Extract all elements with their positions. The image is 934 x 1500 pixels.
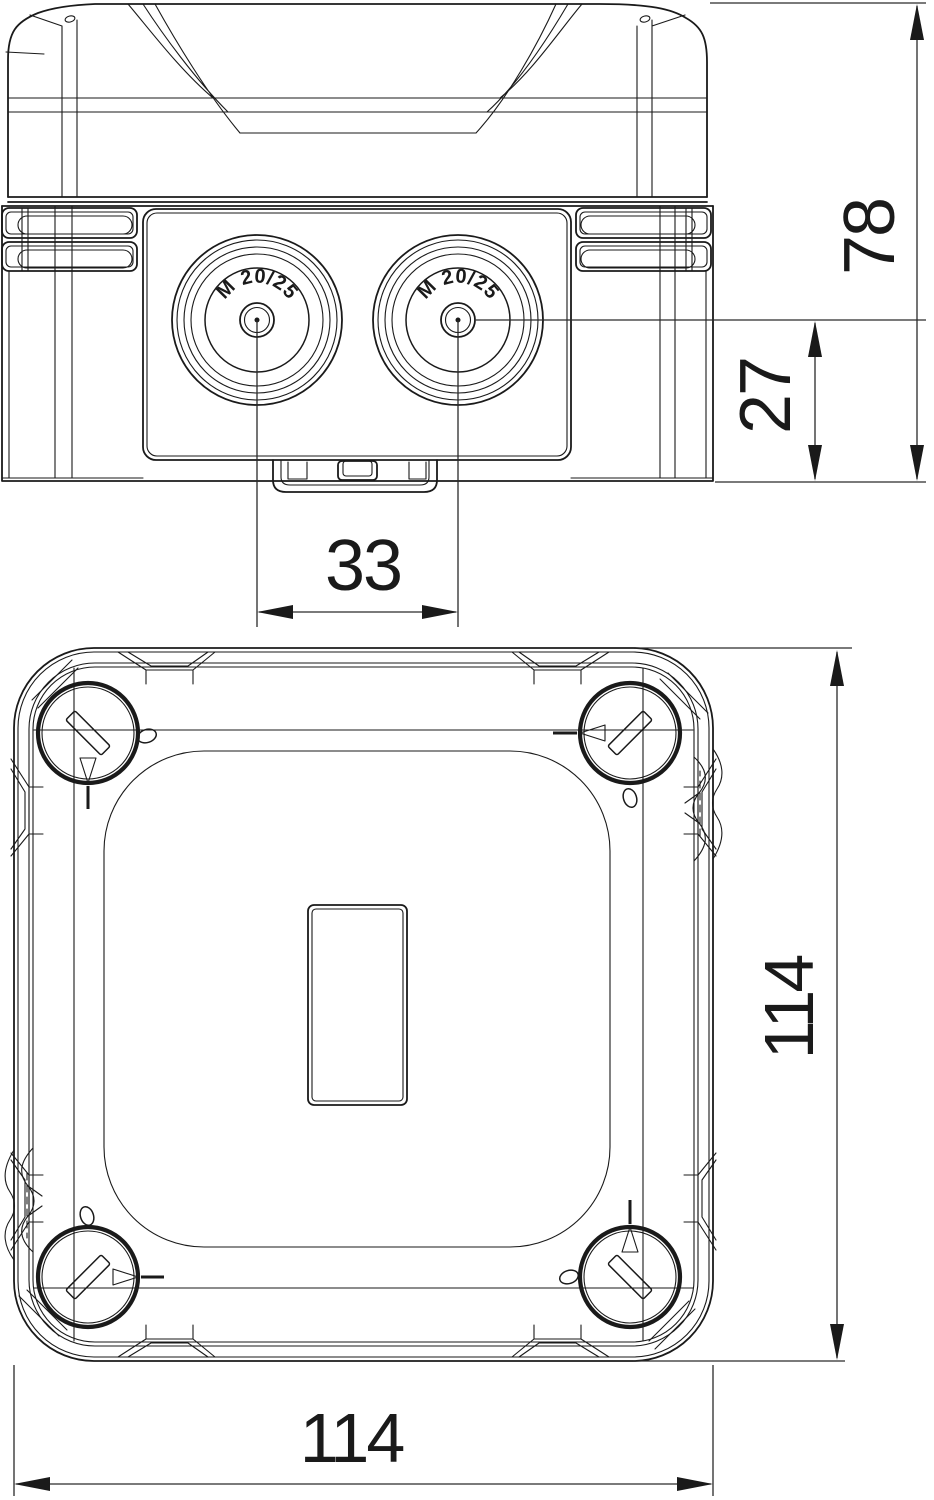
- entry-size-label-right: M 20/25: [413, 265, 503, 303]
- mounting-foot: [273, 460, 437, 492]
- dimension-27: 27: [476, 320, 926, 481]
- plan-side-latch: [5, 1148, 42, 1260]
- lid-recess: [128, 4, 582, 133]
- dim-114h-label: 114: [300, 1399, 404, 1477]
- dimension-33: 33: [257, 526, 458, 619]
- body-inner-walls: [2, 271, 713, 478]
- plan-inner-panel: [104, 751, 610, 1247]
- entry-size-label-left: M 20/25: [212, 265, 302, 303]
- lid-outline: [8, 4, 707, 197]
- dim-78-label: 78: [830, 199, 910, 275]
- dimension-114-vertical: 114: [633, 648, 852, 1361]
- dim-27-label: 27: [726, 358, 806, 434]
- dimension-114-horizontal: 114: [14, 1365, 713, 1496]
- corner-decor: [32, 652, 609, 708]
- drawing-canvas: M 20/25 M 20/25 78 27: [0, 0, 934, 1500]
- lid-seam-lines: [6, 52, 707, 133]
- plan-outer-edge: [14, 648, 713, 1361]
- dim-33-label: 33: [325, 526, 401, 606]
- screw-top-right: [553, 683, 680, 809]
- plan-edge-2: [18, 652, 709, 1357]
- body-outline: [2, 206, 713, 481]
- screw-bottom-right: [558, 1200, 680, 1327]
- technical-drawing-junction-box: M 20/25 M 20/25 78 27: [0, 0, 934, 1500]
- plan-view: [5, 648, 722, 1361]
- lid-corner-seams: [30, 15, 685, 197]
- label-field: [308, 905, 407, 1105]
- screw-bottom-left: [38, 1205, 164, 1327]
- parting-line: [2, 197, 713, 206]
- latch-left: [2, 208, 137, 271]
- screw-top-left: [38, 683, 158, 809]
- label-field-inner: [312, 909, 403, 1101]
- dim-114v-label: 114: [750, 956, 828, 1060]
- latch-right: [576, 208, 711, 271]
- lid-corner-rivet-left: [64, 15, 75, 23]
- lid-corner-rivet-right: [639, 15, 650, 23]
